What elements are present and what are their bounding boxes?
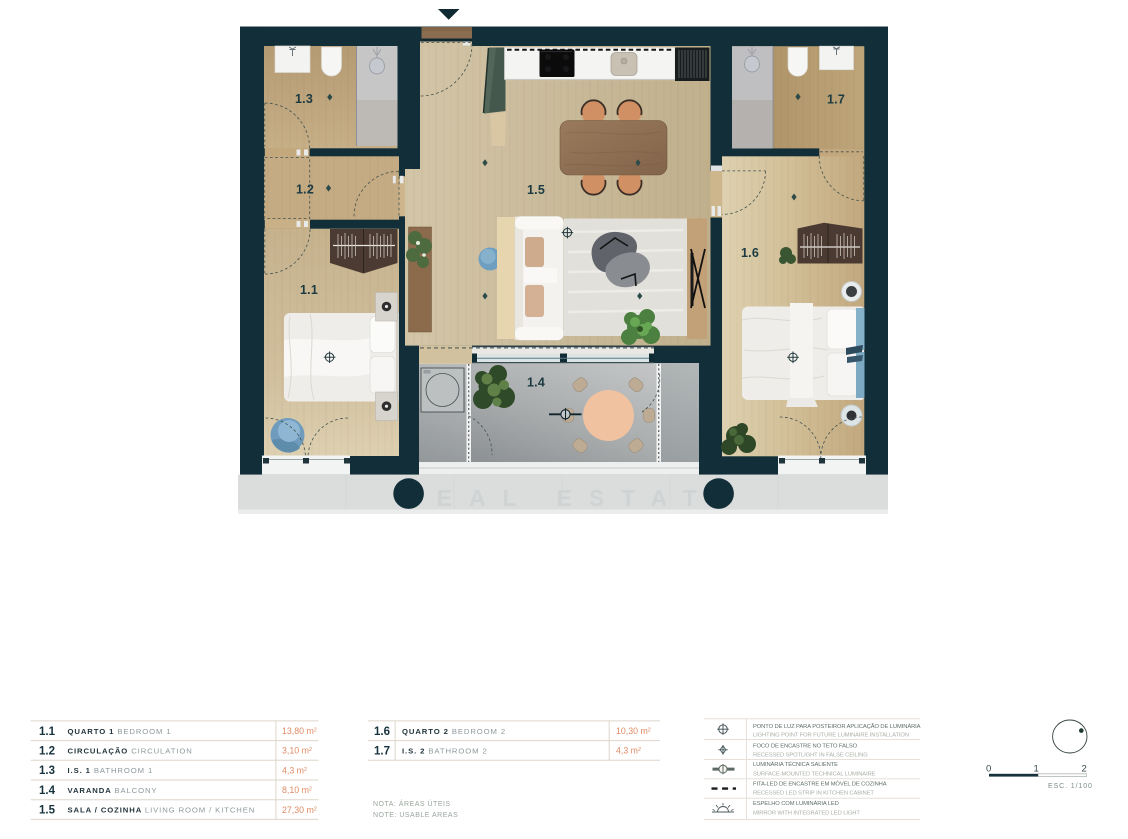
- svg-text:QUARTO 1 BEDROOM 1: QUARTO 1 BEDROOM 1: [68, 727, 172, 736]
- svg-text:0: 0: [986, 763, 991, 774]
- svg-text:1.7: 1.7: [374, 746, 390, 758]
- svg-text:1.7: 1.7: [827, 93, 845, 107]
- svg-text:SURFACE-MOUNTED TECHNICAL LUMI: SURFACE-MOUNTED TECHNICAL LUMINAIRE: [753, 771, 876, 777]
- svg-text:8,10 m2: 8,10 m2: [282, 785, 312, 795]
- svg-text:QUARTO 2 BEDROOM 2: QUARTO 2 BEDROOM 2: [402, 727, 506, 736]
- svg-text:10,30 m2: 10,30 m2: [616, 726, 651, 736]
- svg-text:PONTO DE LUZ PARA POSTEIROR AP: PONTO DE LUZ PARA POSTEIROR APLICAÇÃO DE…: [753, 723, 921, 730]
- svg-text:I.S. 2 BATHROOM 2: I.S. 2 BATHROOM 2: [402, 747, 488, 756]
- svg-text:1: 1: [1034, 763, 1039, 774]
- svg-text:4,3 m2: 4,3 m2: [282, 765, 307, 775]
- svg-text:1.3: 1.3: [39, 765, 55, 777]
- svg-text:13,80 m2: 13,80 m2: [282, 726, 317, 736]
- svg-text:NOTE: USABLE AREAS: NOTE: USABLE AREAS: [373, 812, 458, 819]
- svg-text:1.3: 1.3: [295, 92, 313, 106]
- svg-text:LIGHTING POINT FOR FUTURE LUMI: LIGHTING POINT FOR FUTURE LUMINAIRE INST…: [753, 733, 909, 739]
- svg-text:4,3 m2: 4,3 m2: [616, 746, 641, 756]
- svg-text:CIRCULAÇÃO CIRCULATION: CIRCULAÇÃO CIRCULATION: [68, 747, 193, 756]
- svg-text:RECESSED SPOTLIGHT IN FALSE CE: RECESSED SPOTLIGHT IN FALSE CEILING: [753, 752, 868, 758]
- svg-text:1.6: 1.6: [374, 726, 390, 738]
- svg-text:1.5: 1.5: [527, 183, 545, 197]
- svg-text:27,30 m2: 27,30 m2: [282, 805, 317, 815]
- svg-text:VARANDA BALCONY: VARANDA BALCONY: [68, 786, 158, 795]
- svg-text:LUMINÁRIA TÉCNICA SALIENTE: LUMINÁRIA TÉCNICA SALIENTE: [753, 761, 838, 768]
- svg-text:ESPELHO COM LUMINÁRIA LED: ESPELHO COM LUMINÁRIA LED: [753, 800, 839, 807]
- svg-text:1.2: 1.2: [296, 183, 314, 197]
- svg-text:1.2: 1.2: [39, 746, 55, 758]
- svg-text:1.1: 1.1: [300, 283, 318, 297]
- svg-text:SALA / COZINHA LIVING ROOM / K: SALA / COZINHA LIVING ROOM / KITCHEN: [68, 806, 256, 815]
- svg-text:REAL ESTATE: REAL ESTATE: [403, 485, 746, 511]
- svg-text:3,10 m2: 3,10 m2: [282, 746, 312, 756]
- svg-text:2: 2: [1082, 763, 1087, 774]
- svg-text:1.4: 1.4: [527, 376, 545, 390]
- svg-text:MIRROR WITH INTEGRATED LED LIG: MIRROR WITH INTEGRATED LED LIGHT: [753, 811, 860, 817]
- svg-text:1.5: 1.5: [39, 805, 56, 817]
- svg-text:I.S. 1 BATHROOM 1: I.S. 1 BATHROOM 1: [68, 766, 154, 775]
- svg-text:FOCO DE ENCASTRE NO TETO FALSO: FOCO DE ENCASTRE NO TETO FALSO: [753, 744, 858, 750]
- svg-text:FITA-LED DE ENCASTRE EM MÓVEL: FITA-LED DE ENCASTRE EM MÓVEL DE COZINHA: [753, 780, 887, 787]
- svg-text:ESC. 1/100: ESC. 1/100: [1048, 783, 1093, 790]
- svg-text:1.1: 1.1: [39, 726, 56, 738]
- svg-text:1.6: 1.6: [741, 246, 759, 260]
- svg-text:1.4: 1.4: [39, 785, 56, 797]
- svg-text:NOTA: ÁREAS ÚTEIS: NOTA: ÁREAS ÚTEIS: [373, 799, 451, 808]
- svg-text:RECESSED LED STRIP IN KITCHEN: RECESSED LED STRIP IN KITCHEN CABINET: [753, 790, 874, 796]
